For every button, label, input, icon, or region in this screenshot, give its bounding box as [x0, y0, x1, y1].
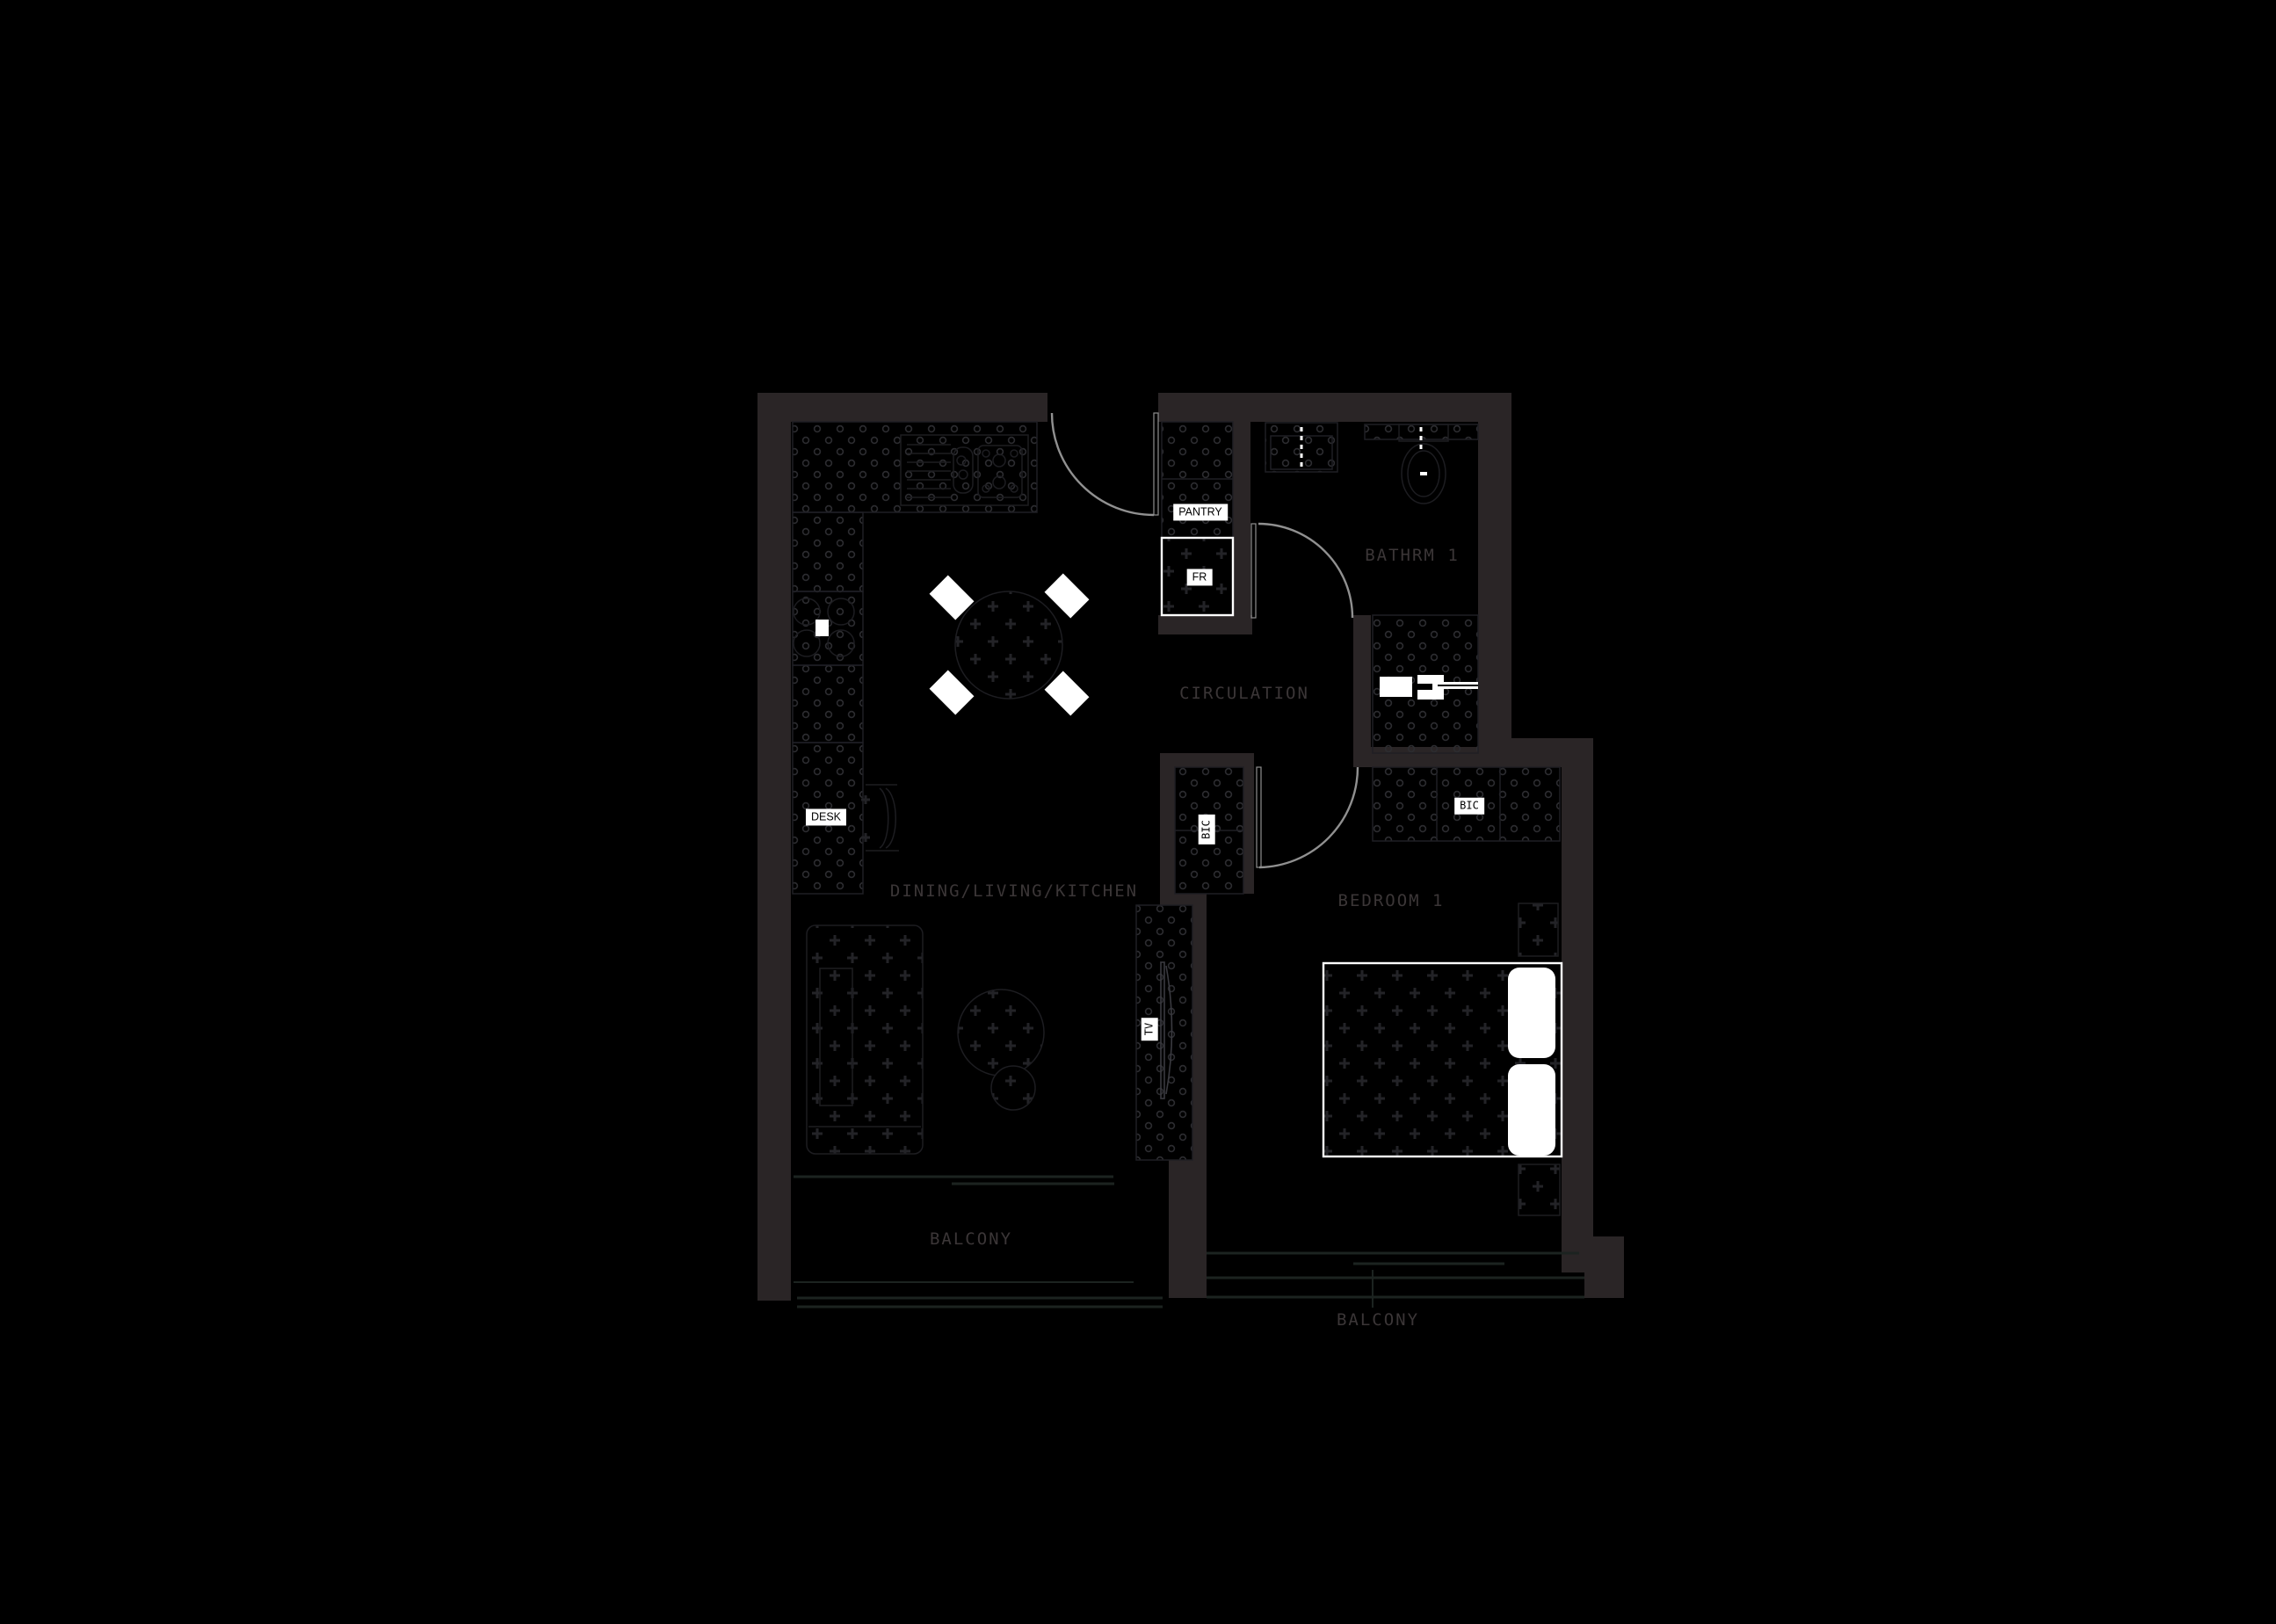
- bic-circulation-tag: BIC: [1199, 815, 1215, 845]
- tv-tag: TV: [1142, 1018, 1158, 1040]
- room-label-dining-living-kitchen: DINING/LIVING/KITCHEN: [890, 881, 1138, 901]
- room-label-balcony-right: BALCONY: [1337, 1310, 1419, 1330]
- pillow: [1508, 1064, 1555, 1156]
- bathroom-door-leaf: [1251, 524, 1256, 618]
- bedroom-furniture: [1323, 903, 1562, 1215]
- floor-plan-drawing: [0, 0, 2276, 1624]
- room-label-balcony-left: BALCONY: [930, 1229, 1012, 1249]
- desk-chair: [861, 785, 899, 851]
- sofa: [807, 925, 923, 1154]
- entry-door-leaf: [1154, 413, 1158, 515]
- nightstand: [1519, 1164, 1560, 1215]
- kitchen-counter-left: [793, 512, 863, 591]
- entry-door-swing: [1052, 413, 1154, 515]
- desk-tag: DESK: [806, 808, 846, 825]
- pillow: [1508, 968, 1555, 1058]
- floor-plan: DINING/LIVING/KITCHEN CIRCULATION BATHRM…: [0, 0, 2276, 1624]
- kitchen-counter-lower: [793, 665, 863, 743]
- pantry-tag: PANTRY: [1173, 504, 1228, 520]
- side-table-small: [991, 1066, 1035, 1110]
- nightstand: [1519, 903, 1558, 956]
- room-label-bedroom-1: BEDROOM 1: [1338, 891, 1445, 910]
- room-label-circulation: CIRCULATION: [1179, 684, 1309, 703]
- dining-table: [955, 591, 1062, 699]
- fridge-tag: FR: [1187, 569, 1213, 585]
- bedroom-door-leaf: [1257, 767, 1261, 867]
- dining-set: [930, 574, 1090, 716]
- room-label-bathrm-1: BATHRM 1: [1365, 546, 1460, 565]
- side-table-large: [958, 990, 1044, 1076]
- bic-bedroom-tag: BIC: [1454, 798, 1484, 815]
- side-tables: [958, 990, 1044, 1110]
- bathroom-door-swing: [1258, 524, 1352, 618]
- bedroom-door-swing: [1259, 767, 1358, 867]
